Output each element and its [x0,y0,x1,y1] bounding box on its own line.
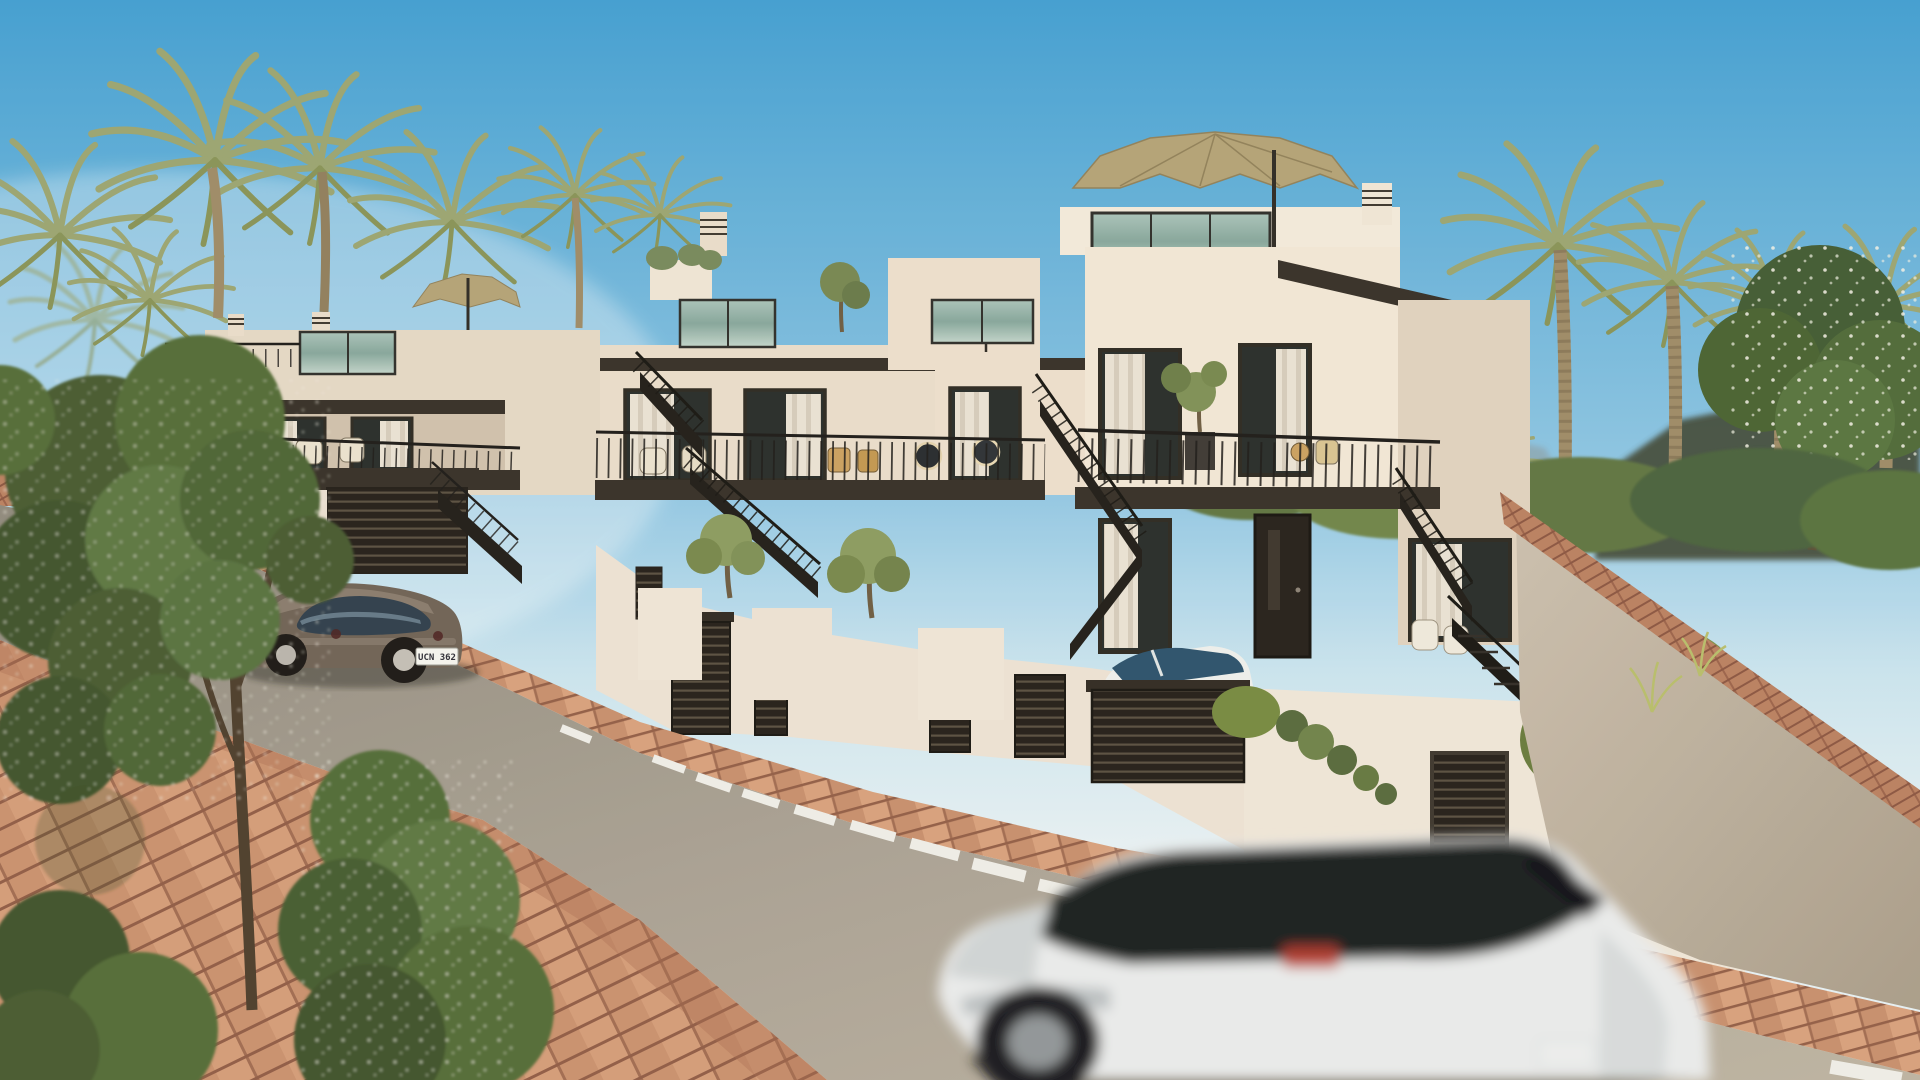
scene-canvas: UCN 362 [0,0,1920,1080]
vignette [0,0,1920,1080]
architectural-render: UCN 362 [0,0,1920,1080]
